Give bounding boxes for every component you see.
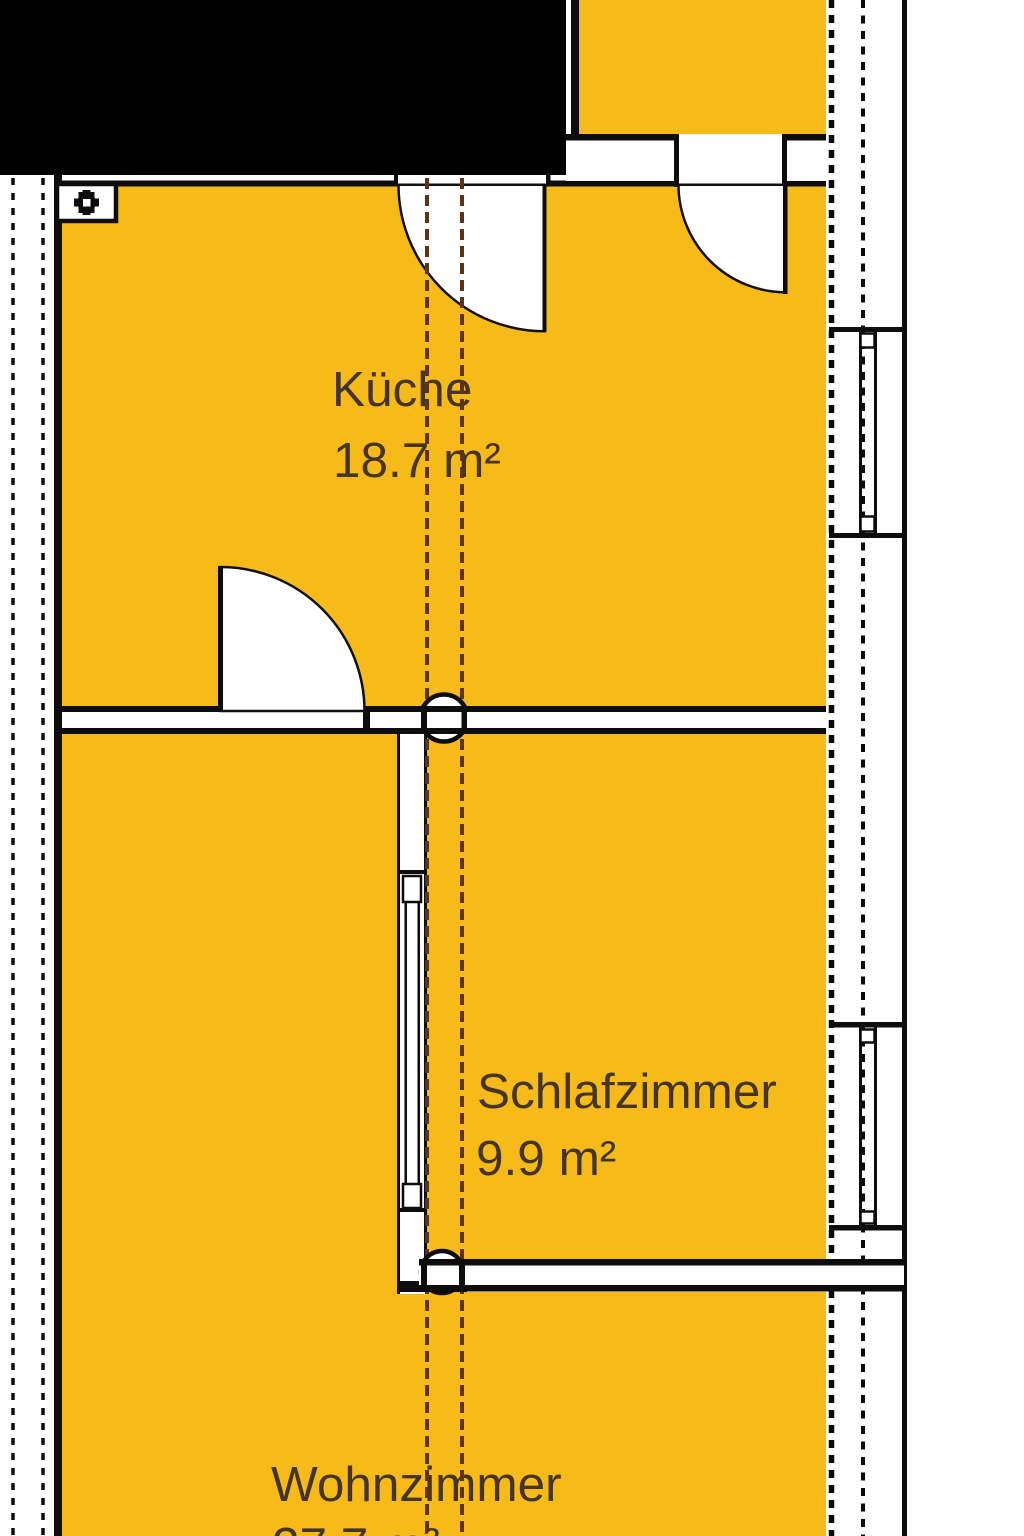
svg-text:9.9 m²: 9.9 m² bbox=[476, 1131, 616, 1186]
svg-text:Wohnzimmer: Wohnzimmer bbox=[271, 1457, 562, 1512]
svg-text:27.7 m²: 27.7 m² bbox=[272, 1518, 440, 1536]
svg-text:Küche: Küche bbox=[332, 362, 472, 417]
svg-text:Schlafzimmer: Schlafzimmer bbox=[477, 1064, 777, 1119]
svg-text:18.7 m²: 18.7 m² bbox=[333, 433, 501, 488]
